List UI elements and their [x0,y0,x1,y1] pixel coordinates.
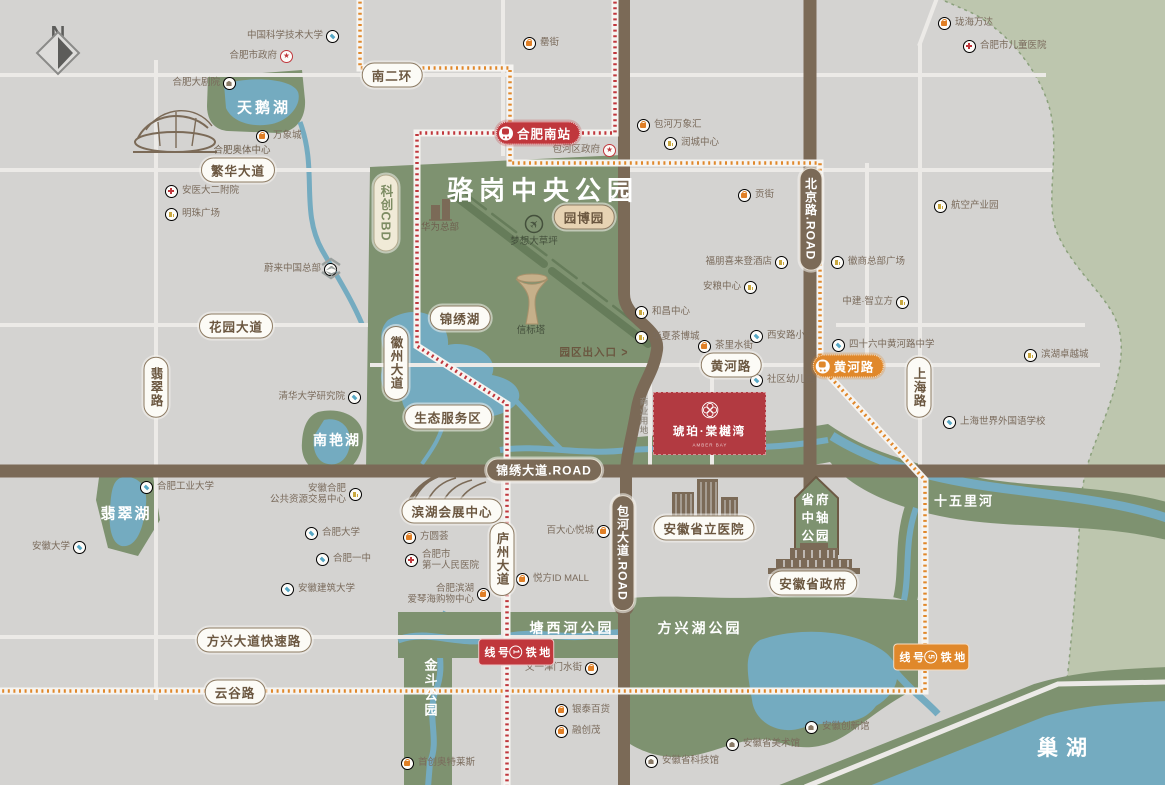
metro-line-label-char: 1 [510,646,523,659]
poi-label-line: 华夏茶博城 [652,332,700,343]
park-label: 骆岗中央公园 [447,171,639,208]
park-label: 方兴湖公园 [658,618,743,638]
poi-label: 合肥一中 [333,554,371,565]
poi-label: 蔚来中国总部 [264,264,321,275]
mall-icon [477,588,490,601]
road-badge-white: 滨湖会展中心 [401,499,502,524]
metro-line-label-char: 号 [911,652,924,663]
road-badge-white: 安徽省立医院 [653,516,754,541]
park-label: 塘西河公园 [530,618,615,638]
badge-label: 北京路.ROAD [804,178,818,261]
museum-icon [805,721,818,734]
edu-icon [326,30,339,43]
poi-label-line: 合肥市儿童医院 [980,41,1047,52]
edu-icon [316,553,329,566]
metro-line-label-char: 线 [897,652,910,663]
poi-label-line: 公共资源交易中心 [270,495,346,506]
metro-line-label-char: 地 [952,652,965,663]
poi-label: 贡街 [755,190,774,201]
badge-label: 方兴大道快速路 [207,635,302,649]
museum-icon [726,738,739,751]
poi-label-line: 合肥大学 [322,528,360,539]
poi-label-line: 银泰百货 [572,705,610,716]
project-name: 琥珀·棠樾湾 [673,423,746,439]
edu-icon [281,583,294,596]
poi-label-line: 融创茂 [572,726,601,737]
biz-icon [934,200,947,213]
landmark-label-text: 华为总部 [421,222,459,233]
poi-label: 融创茂 [572,726,601,737]
poi-label-line: 珑海万达 [955,18,993,29]
road-badge-white: 上海路 [907,357,932,418]
poi-label: 银泰百货 [572,705,610,716]
park-label: 金斗公园 [421,658,440,718]
poi-label-line: 合肥一中 [333,554,371,565]
poi-label: 安徽省美术馆 [743,739,800,750]
poi-label-line: 中国科学技术大学 [247,31,323,42]
poi-label: 社区幼儿园 [767,375,815,386]
poi-label-line: 安徽省美术馆 [743,739,800,750]
road-badge-white: 方兴大道快速路 [197,628,312,653]
road-badge-white: 安徽省政府 [769,571,857,596]
badge-label: 黄河路 [711,360,752,374]
edu-icon [943,416,956,429]
poi-label-line: 滨湖卓越城 [1041,350,1089,361]
project-site-block: 琥珀·棠樾湾 AMBER BAY [653,392,766,455]
landmark-label: 商业用地 [638,397,650,435]
mall-icon [555,725,568,738]
biz-icon [635,331,648,344]
map-overlay: 省府 中轴 公园 琥珀·棠樾湾 AMBER BAY 商业用地 中国科学技术大学合… [0,0,1165,785]
poi-label-line: 万象城 [273,131,302,142]
poi-label: 首创奥特莱斯 [418,758,475,769]
station-label: 合肥南站 [517,124,571,143]
provincial-axis-park-label: 省府 中轴 公园 [801,491,830,545]
landmark-label: 梦想大草坪 [510,233,558,247]
mall-icon [698,340,711,353]
poi-label: 悦方ID MALL [533,574,589,585]
gov-icon [280,50,293,63]
poi-label: 合肥大剧院 [172,78,220,89]
badge-label: 徽州大道 [389,336,403,390]
mall-icon [585,662,598,675]
road-badge-white: 繁华大道 [201,158,275,183]
poi-label: 润城中心 [681,138,719,149]
park-label: 翡翠湖 [100,503,151,524]
poi-label-line: 润城中心 [681,138,719,149]
landmark-label: 合肥奥体中心 [213,142,270,156]
landmark-label-text: 合肥奥体中心 [213,145,270,156]
mall-icon [637,119,650,132]
badge-label: 锦绣湖 [440,313,481,327]
poi-label: 安徽大学 [32,542,70,553]
poi-label-line: 安徽大学 [32,542,70,553]
badge-label: 南二环 [372,70,413,84]
park-label: 天鹅湖 [237,97,291,118]
poi-label-line: 合肥市政府 [229,51,277,62]
park-label: 巢湖 [1037,732,1095,762]
badge-label: 繁华大道 [211,165,265,179]
hosp-icon [165,185,178,198]
poi-label: 合肥滨湖爱琴海购物中心 [407,584,474,606]
poi-label-line: 中建·智立方 [842,297,893,308]
badge-label: 上海路 [912,367,926,408]
gov-icon [603,144,616,157]
nio-icon [324,263,337,276]
badge-label: 安徽省政府 [779,578,847,592]
mall-icon [401,757,414,770]
road-badge-white: 徽州大道 [384,326,409,400]
poi-label: 合肥大学 [322,528,360,539]
project-subtitle: AMBER BAY [692,442,727,447]
road-badge-brown: 北京路.ROAD [800,168,823,271]
poi-label-line: 悦方ID MALL [533,574,589,585]
poi-label: 万象城 [273,131,302,142]
biz-icon [1024,349,1037,362]
badge-label: 锦绣大道.ROAD [496,464,592,478]
badge-label: 安徽省立医院 [663,523,744,537]
poi-label-line: 包河万象汇 [654,120,702,131]
poi-label: 珑海万达 [955,18,993,29]
biz-icon [775,256,788,269]
poi-label: 华夏茶博城 [652,332,700,343]
biz-icon [896,296,909,309]
poi-label-line: 安医大二附院 [182,186,239,197]
road-badge-tan: 园博园 [554,205,615,230]
poi-label-line: 清华大学研究院 [278,392,345,403]
location-map: ✈ N 省府 中轴 公园 [0,0,1165,785]
mall-icon [516,573,529,586]
poi-label: 安徽创新馆 [822,722,870,733]
poi-label: 罍街 [540,38,559,49]
mall-icon [597,525,610,538]
road-badge-white: 锦绣湖 [430,306,491,331]
poi-label: 包河区政府 [552,145,600,156]
road-badge-white: 云谷路 [205,680,266,705]
edu-icon [348,391,361,404]
road-badge-white: 花园大道 [199,314,273,339]
road-badge-white: 翡翠路 [144,357,169,418]
shield-line: 公园 [801,527,830,545]
badge-label: 滨湖会展中心 [411,506,492,520]
poi-label-line: 四十六中黄河路中学 [849,340,935,351]
poi-label: 四十六中黄河路中学 [849,340,935,351]
badge-label: 翡翠路 [149,367,163,408]
badge-label: 包河大道.ROAD [616,505,630,601]
mall-icon [403,531,416,544]
poi-label-line: 明珠广场 [182,209,220,220]
badge-label: 科创CBD [379,184,393,241]
road-badge-metro-orange: 地铁5号线 [893,644,969,671]
landmark-label: 信标塔 [517,322,546,336]
shield-line: 中轴 [801,509,830,527]
poi-label-line: 安粮中心 [703,282,741,293]
poi-label-line: 徽商总部广场 [848,257,905,268]
road-badge-metro-red: 地铁1号线 [478,639,554,666]
poi-label-line: 和昌中心 [652,307,690,318]
road-badge-brown: 锦绣大道.ROAD [486,459,602,482]
edu-icon [140,481,153,494]
metro-line-label-char: 号 [496,647,509,658]
road-badge-sage: 科创CBD [374,174,399,251]
biz-icon [831,256,844,269]
poi-label-line: 西安路小学 [767,331,815,342]
metro-line-label-char: 5 [925,651,938,664]
edu-icon [832,339,845,352]
poi-label: 百大心悦城 [546,526,594,537]
landmark-label-text: 梦想大草坪 [510,236,558,247]
poi-label: 包河万象汇 [654,120,702,131]
mall-icon [555,704,568,717]
biz-icon [165,208,178,221]
edu-icon [305,527,318,540]
poi-label: 茶里水街 [715,341,753,352]
station-label: 黄河路 [834,357,875,376]
park-label: 南艳湖 [313,430,361,450]
mall-icon [738,189,751,202]
road-badge-white: 生态服务区 [404,405,492,430]
poi-label: 明珠广场 [182,209,220,220]
poi-label-line: 安徽省科技馆 [662,756,719,767]
poi-label-line: 方圆荟 [420,532,449,543]
landmark-label: 园区出入口> [559,345,628,360]
metro-line-label-char: 铁 [939,652,952,663]
metro-line-label-char: 线 [482,647,495,658]
poi-label-line: 蔚来中国总部 [264,264,321,275]
train-icon [499,126,513,140]
road-badge-station-red: 合肥南站 [496,122,580,145]
road-badge-station-orange: 黄河路 [813,355,884,378]
poi-label-line: 上海世界外国语学校 [960,417,1046,428]
hosp-icon [963,40,976,53]
poi-label-line: 百大心悦城 [546,526,594,537]
badge-label: 庐州大道 [495,532,509,586]
hosp-icon [405,554,418,567]
road-badge-white: 黄河路 [701,353,762,378]
biz-icon [744,281,757,294]
poi-label-line: 第一人民医院 [422,561,479,572]
mall-icon [523,37,536,50]
poi-label: 滨湖卓越城 [1041,350,1089,361]
poi-label: 安徽建筑大学 [298,584,355,595]
badge-label: 园博园 [564,212,605,226]
poi-label: 中建·智立方 [842,297,893,308]
poi-label: 徽商总部广场 [848,257,905,268]
entrance-arrow-icon: > [621,345,628,360]
poi-label: 和昌中心 [652,307,690,318]
biz-icon [664,137,677,150]
poi-label: 中国科学技术大学 [247,31,323,42]
poi-label-line: 福朋喜来登酒店 [705,257,772,268]
biz-icon [349,488,362,501]
poi-label-line: 安徽创新馆 [822,722,870,733]
metro-line-label-char: 地 [537,647,550,658]
poi-label: 福朋喜来登酒店 [705,257,772,268]
landmark-label-text: 园区出入口 [559,347,617,359]
poi-label: 上海世界外国语学校 [960,417,1046,428]
project-emblem-icon [698,398,722,422]
badge-label: 花园大道 [209,321,263,335]
poi-label-line: 合肥大剧院 [172,78,220,89]
mall-icon [938,17,951,30]
poi-label: 安徽省科技馆 [662,756,719,767]
poi-label-line: 包河区政府 [552,145,600,156]
biz-icon [635,306,648,319]
poi-label: 安徽合肥公共资源交易中心 [270,484,346,506]
park-label: 十五里河 [934,491,994,510]
poi-label-line: 贡街 [755,190,774,201]
poi-label: 合肥市儿童医院 [980,41,1047,52]
poi-label-line: 茶里水街 [715,341,753,352]
poi-label: 安医大二附院 [182,186,239,197]
poi-label: 西安路小学 [767,331,815,342]
landmark-label: 华为总部 [421,219,459,233]
poi-label-line: 航空产业园 [951,201,999,212]
road-badge-white: 南二环 [362,63,423,88]
poi-label: 清华大学研究院 [278,392,345,403]
edu-icon [750,330,763,343]
poi-label-line: 爱琴海购物中心 [407,595,474,606]
landmark-label-text: 商业用地 [639,397,649,435]
poi-label: 方圆荟 [420,532,449,543]
poi-label: 合肥市第一人民医院 [422,550,479,572]
poi-label-line: 罍街 [540,38,559,49]
poi-label: 航空产业园 [951,201,999,212]
road-badge-brown: 包河大道.ROAD [612,495,635,611]
metro-icon [816,359,830,373]
poi-label: 合肥工业大学 [157,482,214,493]
museum-icon [645,755,658,768]
poi-label-line: 安徽建筑大学 [298,584,355,595]
poi-label-line: 首创奥特莱斯 [418,758,475,769]
poi-label-line: 合肥工业大学 [157,482,214,493]
badge-label: 生态服务区 [414,412,482,426]
landmark-label-text: 信标塔 [517,325,546,336]
poi-label: 合肥市政府 [229,51,277,62]
poi-label: 安粮中心 [703,282,741,293]
museum-icon [223,77,236,90]
badge-label: 云谷路 [215,687,256,701]
poi-label-line: 社区幼儿园 [767,375,815,386]
road-badge-white: 庐州大道 [490,522,515,596]
edu-icon [73,541,86,554]
metro-line-label-char: 铁 [524,647,537,658]
shield-line: 省府 [801,491,830,509]
